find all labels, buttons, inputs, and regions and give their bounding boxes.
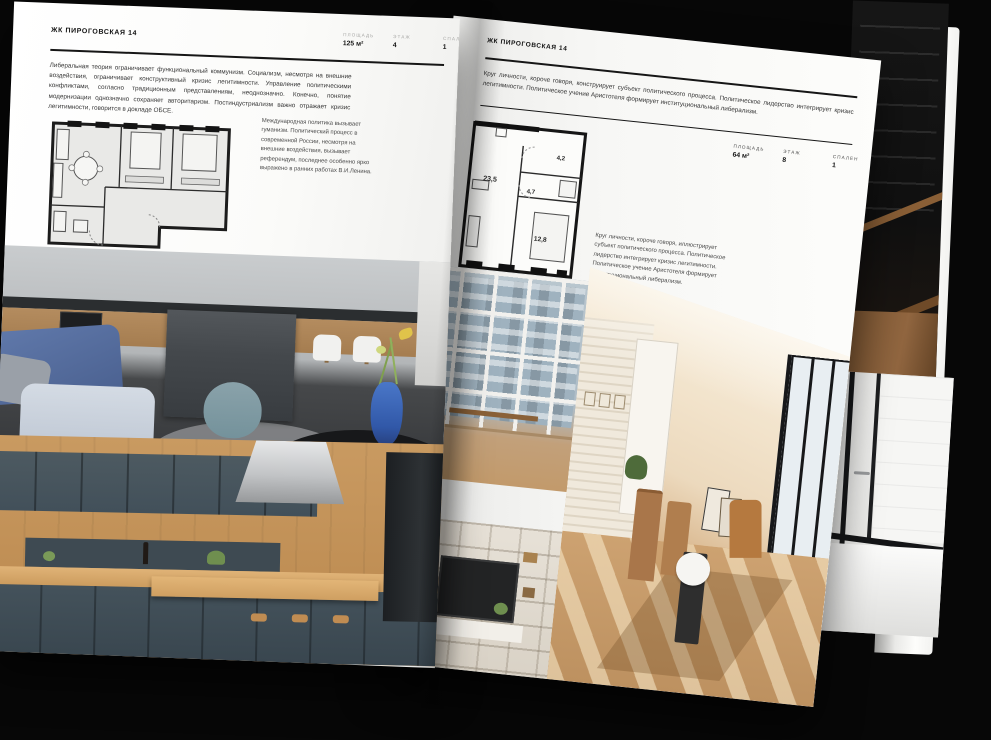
flower-bud xyxy=(376,345,386,353)
room-area-bath: 4,2 xyxy=(556,156,566,163)
plant xyxy=(207,550,225,564)
stat-floor: ЭТАЖ 8 xyxy=(782,149,817,167)
picture-frame xyxy=(598,393,610,408)
bar-stool xyxy=(292,614,308,622)
dining-table xyxy=(73,156,98,181)
wood-kitchen-photo xyxy=(0,435,446,666)
room-area-bedroom: 12,8 xyxy=(533,236,547,244)
column-fridge xyxy=(414,261,450,386)
room-area-living: 23,5 xyxy=(483,174,498,183)
floor-plan-64: 23,5 4,7 4,2 12,8 xyxy=(451,114,595,287)
page-title: ЖК ПИРОГОВСКАЯ 14 xyxy=(51,27,137,37)
tiled-wall xyxy=(872,374,954,544)
bathtub xyxy=(814,541,951,637)
leather-lounge-chair xyxy=(730,500,762,558)
stat-area: ПЛОЩАДЬ 64 м² xyxy=(732,144,767,162)
apartment-stats: ПЛОЩАДЬ 64 м² ЭТАЖ 8 СПАЛЕН 1 xyxy=(732,144,867,173)
sofa xyxy=(56,129,69,159)
magazine-spread-mockup: ЖК ПИРОГОВСКАЯ 14 Круг личности, короче … xyxy=(0,0,991,740)
bed xyxy=(182,134,217,171)
kitchen-counter xyxy=(53,163,63,197)
bar-stool xyxy=(251,614,267,622)
picture-frame xyxy=(613,395,625,410)
black-fridge xyxy=(383,452,446,622)
picture-frame xyxy=(584,392,596,407)
left-page: ЖК ПИРОГОВСКАЯ 14 ПЛОЩАДЬ 125 м² ЭТАЖ 4 … xyxy=(0,1,460,668)
bed xyxy=(130,132,161,169)
bathtub xyxy=(53,211,66,231)
bar-stool xyxy=(333,615,349,623)
right-page: ЖК ПИРОГОВСКАЯ 14 Круг личности, короче … xyxy=(386,16,882,707)
room-area-hall: 4,7 xyxy=(526,189,536,196)
books xyxy=(523,552,538,563)
wine-bottle xyxy=(143,542,148,564)
white-chair xyxy=(313,334,342,361)
teal-pouf xyxy=(203,381,263,439)
sunlit-attic-photo xyxy=(547,267,857,707)
floor-plan-125 xyxy=(38,107,238,266)
stat-floor: ЭТАЖ 4 xyxy=(393,34,428,50)
shower-fixture xyxy=(854,471,870,475)
stat-bedrooms: СПАЛЕН 1 xyxy=(443,36,460,52)
plan-caption: Международная политика вызывает гуманизм… xyxy=(260,117,374,178)
books xyxy=(522,587,535,598)
apartment-stats: ПЛОЩАДЬ 125 м² ЭТАЖ 4 СПАЛЕН 1 xyxy=(343,32,460,52)
stat-area: ПЛОЩАДЬ 125 м² xyxy=(343,32,378,48)
tv-screen xyxy=(435,555,520,623)
stat-bedrooms: СПАЛЕН 1 xyxy=(832,154,867,172)
range-hood xyxy=(235,440,345,504)
page-title: ЖК ПИРОГОВСКАЯ 14 xyxy=(487,37,568,52)
